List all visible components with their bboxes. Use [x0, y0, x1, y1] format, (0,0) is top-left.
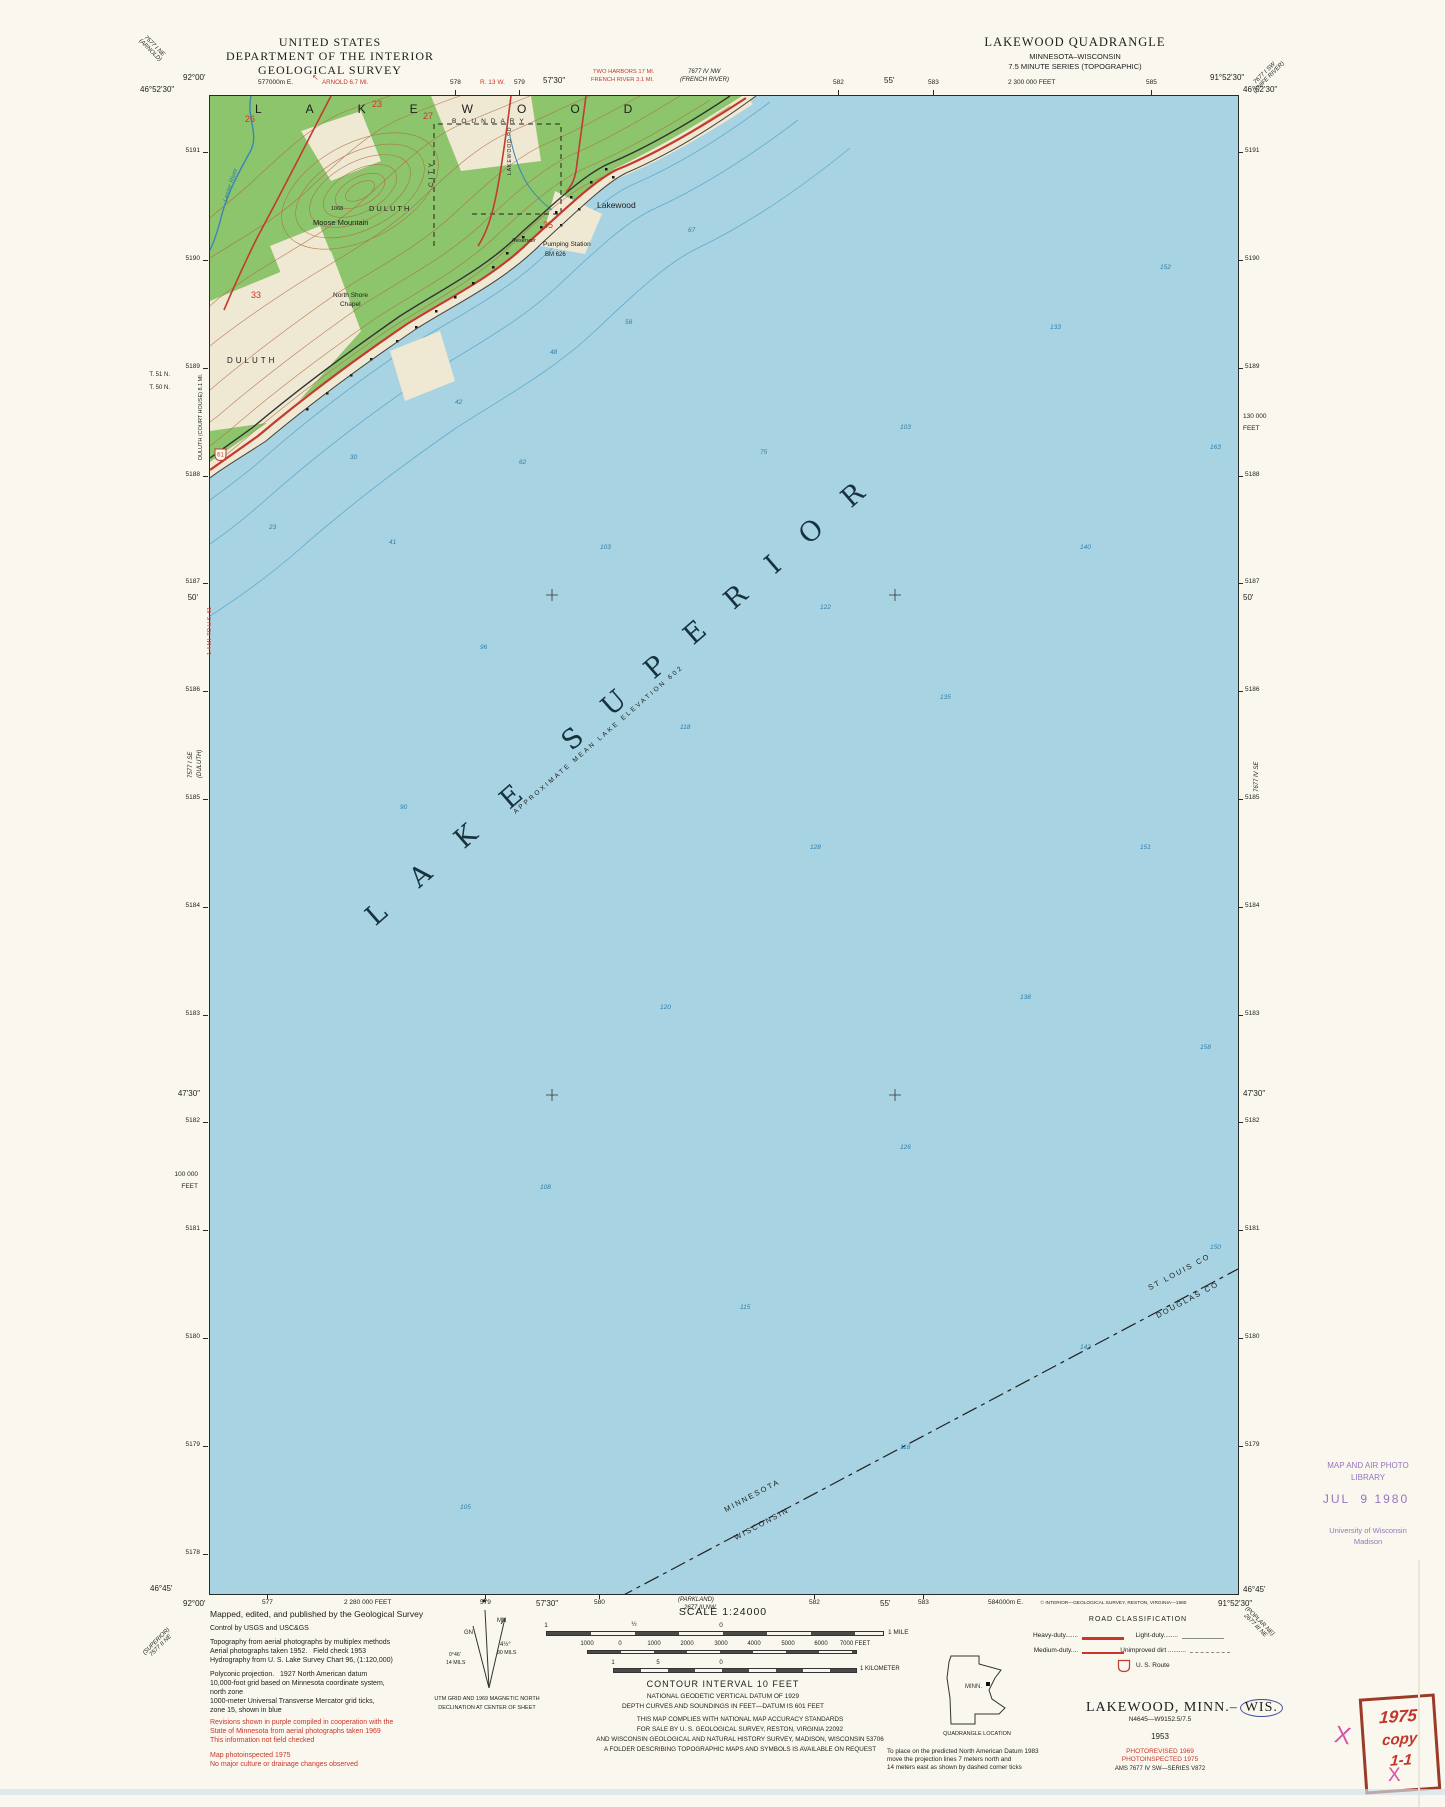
compliance-text: FOR SALE BY U. S. GEOLOGICAL SURVEY, RES…: [637, 1727, 843, 1734]
road-class-light: Light-duty........: [1135, 1633, 1178, 1640]
edge-label-bottom: 580: [594, 1600, 605, 1607]
edge-label-left: 7577 I NE (ARNOLD): [137, 34, 166, 63]
scale-label: 2000: [680, 1641, 693, 1647]
edge-label-top: 46°52'30": [1243, 86, 1277, 94]
grid-tick: [203, 368, 208, 369]
edge-label-bottom: 582: [809, 1600, 820, 1607]
edge-label-bottom: 91°52'30": [1218, 1600, 1252, 1608]
edge-label-right: 5185: [1245, 795, 1259, 802]
header-text: 7.5 MINUTE SERIES (TOPOGRAPHIC): [1008, 63, 1141, 71]
edge-label-right: 5190: [1245, 256, 1259, 263]
edge-label-right: 5180: [1245, 1334, 1259, 1341]
title-block-text: N4645—W9152.5/7.5: [1129, 1717, 1192, 1724]
sheet-title: LAKEWOOD, MINN.–WIS.: [1086, 1700, 1283, 1716]
scale-label: 1 MILE: [888, 1630, 909, 1637]
edge-label-bottom: ✩ INTERIOR—GEOLOGICAL SURVEY, RESTON, VI…: [1040, 1601, 1186, 1606]
edge-label-bottom: 583: [918, 1600, 929, 1607]
scale-label: CONTOUR INTERVAL 10 FEET: [647, 1680, 800, 1689]
edge-label-right: 7677 I SW (KNIFE RIVER): [1248, 57, 1286, 95]
edge-label-right: 130 000: [1243, 414, 1267, 421]
compliance-text: AND WISCONSIN GEOLOGICAL AND NATURAL HIS…: [596, 1737, 884, 1744]
edge-label-bottom: 46°45': [150, 1585, 173, 1593]
credit-note: zone 15, shown in blue: [210, 1707, 282, 1714]
grid-tick: [203, 799, 208, 800]
edge-label-bottom: 57'30": [536, 1600, 558, 1608]
edge-label-top: 55': [884, 77, 894, 85]
nad83-note: 14 meters east as shown by dashed corner…: [887, 1765, 1022, 1772]
map-frame: 61: [209, 95, 1239, 1595]
edge-label-left: 5179: [186, 1442, 200, 1449]
library-stamp-text: JUL 9 1980: [1323, 1493, 1409, 1506]
edge-label-left: T. 50 N.: [149, 385, 170, 391]
grid-tick: [203, 1122, 208, 1123]
compliance-text: A FOLDER DESCRIBING TOPOGRAPHIC MAPS AND…: [604, 1747, 876, 1754]
edge-label-top: 578: [450, 80, 461, 87]
header-text: MINNESOTA–WISCONSIN: [1029, 53, 1121, 61]
edge-label-top: ARNOLD 6.7 MI.: [322, 80, 368, 87]
grid-tick: [203, 476, 208, 477]
edge-label-left: 5191: [186, 148, 200, 155]
copy-stamp-year: 1975: [1362, 1705, 1433, 1730]
us-route-61-shield: 61: [215, 449, 226, 461]
scale-label: 1: [611, 1660, 614, 1666]
edge-label-top: 92°00': [183, 74, 206, 82]
scan-edge-strip: [0, 1789, 1445, 1795]
edge-label-right: 5191: [1245, 148, 1259, 155]
edge-label-top: ↖: [312, 74, 319, 82]
credit-note: Aerial photographs taken 1952. Field che…: [210, 1648, 366, 1655]
road-class-medium: Medium-duty....: [1034, 1648, 1078, 1655]
credit-note: Polyconic projection. 1927 North America…: [210, 1671, 367, 1678]
scale-label: 1: [544, 1623, 548, 1630]
grid-tick: [203, 1446, 208, 1447]
edge-label-top: 7677 IV NW: [688, 69, 720, 75]
edge-label-top: 579: [514, 80, 525, 87]
credit-note: Mapped, edited, and published by the Geo…: [210, 1610, 423, 1619]
edge-label-left: 5184: [186, 903, 200, 910]
library-stamp-text: LIBRARY: [1351, 1474, 1385, 1482]
edge-label-left: 7577 I SE: [188, 752, 194, 778]
map-artwork: 61: [210, 96, 1238, 1594]
copy-stamp: 1975 copy 1-1: [1359, 1693, 1442, 1794]
quad-location-caption: QUADRANGLE LOCATION: [943, 1732, 1011, 1738]
edge-label-left: 100 000: [175, 1172, 199, 1179]
edge-label-top: (FRENCH RIVER): [680, 77, 729, 83]
edge-label-top: R. 13 W.: [480, 80, 505, 87]
edge-label-left: DULUTH (COURT HOUSE) 8.1 MI.: [199, 374, 205, 460]
edge-label-right: 5182: [1245, 1118, 1259, 1125]
edge-label-bottom: 2677 III NW: [684, 1605, 716, 1611]
paper-crease: [1418, 1560, 1420, 1807]
copy-stamp-number: 1-1: [1366, 1749, 1437, 1771]
scale-label: 0: [719, 1660, 722, 1666]
edge-label-top: 585: [1146, 80, 1157, 87]
state-abbrev: MINN.: [965, 1684, 982, 1690]
library-stamp-text: Madison: [1354, 1538, 1382, 1546]
edge-label-left: 5178: [186, 1550, 200, 1557]
nad83-note: move the projection lines 7 meters north…: [887, 1757, 1011, 1764]
edge-label-right: 5189: [1245, 364, 1259, 371]
scale-label: 5000: [781, 1641, 794, 1647]
scale-label: 1000: [580, 1641, 593, 1647]
edge-label-left: 5186: [186, 687, 200, 694]
edge-label-right: 5187: [1245, 579, 1259, 586]
sheet-title-wis-oval: WIS.: [1240, 1699, 1283, 1717]
quadrangle-location-map: MINN.: [945, 1652, 1009, 1728]
grid-tick: [203, 583, 208, 584]
edge-label-right: 47'30": [1243, 1090, 1265, 1098]
edge-label-bottom: (PARKLAND): [678, 1597, 714, 1603]
grid-tick: [203, 260, 208, 261]
medium-duty-line: [1082, 1652, 1124, 1654]
edge-label-top: TWO HARBORS 17 MI.: [593, 69, 655, 75]
credit-note: State of Minnesota from aerial photograp…: [210, 1728, 381, 1735]
credit-note: 10,000-foot grid based on Minnesota coor…: [210, 1680, 385, 1687]
edge-label-bottom: 577: [262, 1600, 273, 1607]
scale-label: DEPTH CURVES AND SOUNDINGS IN FEET—DATUM…: [622, 1704, 824, 1711]
edge-label-left: FEET: [181, 1184, 198, 1191]
compliance-text: THIS MAP COMPLIES WITH NATIONAL MAP ACCU…: [637, 1717, 843, 1724]
sheet-title-text: LAKEWOOD, MINN.–: [1086, 1700, 1238, 1715]
title-block-text: PHOTOINSPECTED 1975: [1122, 1757, 1198, 1764]
edge-label-right: 5186: [1245, 687, 1259, 694]
edge-label-bottom: 92°00': [183, 1600, 206, 1608]
title-block-text: PHOTOREVISED 1969: [1126, 1749, 1194, 1756]
edge-label-left: 5181: [186, 1226, 200, 1233]
scale-label: 7000 FEET: [840, 1641, 870, 1647]
header-text: UNITED STATES: [279, 36, 381, 49]
pencil-x-mark: X: [1333, 1722, 1353, 1750]
edge-label-left: 47'30": [178, 1090, 200, 1098]
title-block-text: AMS 7677 IV SW—SERIES V872: [1115, 1766, 1205, 1772]
edge-label-left: T. 51 N.: [149, 372, 170, 378]
scale-label: 0: [618, 1641, 621, 1647]
unimproved-dirt-line: [1190, 1652, 1230, 1653]
grid-tick: [203, 907, 208, 908]
topo-map-sheet: 61 LAKEWOODBOUNDARYCITYDULUTHMoose Mount…: [0, 0, 1445, 1807]
nad83-note: To place on the predicted North American…: [887, 1749, 1039, 1756]
scale-label: NATIONAL GEODETIC VERTICAL DATUM OF 1929: [647, 1694, 799, 1701]
credit-note: No major culture or drainage changes obs…: [210, 1761, 358, 1768]
scale-label: 6000: [814, 1641, 827, 1647]
grid-tick: [203, 152, 208, 153]
edge-label-top: 46°52'30": [140, 86, 174, 94]
quad-location-dot: [986, 1682, 990, 1686]
us-route-shield-icon: [1117, 1659, 1131, 1673]
edge-label-right: 5184: [1245, 903, 1259, 910]
header-text: DEPARTMENT OF THE INTERIOR: [226, 50, 434, 63]
edge-label-left: 5188: [186, 472, 200, 479]
grid-tick: [203, 1015, 208, 1016]
declination-label: UTM GRID AND 1969 MAGNETIC NORTH: [434, 1697, 539, 1703]
edge-label-top: 2 300 000 FEET: [1008, 80, 1055, 87]
scale-bar-kilometer: [613, 1668, 857, 1673]
edge-label-bottom: 584000m E.: [988, 1600, 1023, 1607]
edge-label-right: 5179: [1245, 1442, 1259, 1449]
edge-label-right: 5181: [1245, 1226, 1259, 1233]
edge-label-left: 5182: [186, 1118, 200, 1125]
edge-label-bottom: 2 280 000 FEET: [344, 1600, 391, 1607]
edge-label-right: 5188: [1245, 472, 1259, 479]
road-class-route: U. S. Route: [1136, 1663, 1170, 1670]
edge-label-left: 5189: [186, 364, 200, 371]
edge-label-bottom: 46°45': [1243, 1586, 1266, 1594]
grid-tick: [203, 691, 208, 692]
route-number: 61: [217, 453, 224, 459]
scale-bar-mile: [546, 1631, 884, 1636]
edge-label-left: 5190: [186, 256, 200, 263]
scale-bar-feet: [587, 1650, 857, 1654]
grid-tick: [203, 1230, 208, 1231]
edge-label-left: 5187: [186, 579, 200, 586]
road-class-heavy: Heavy-duty.......: [1033, 1633, 1078, 1640]
edge-label-top: 91°52'30": [1210, 74, 1244, 82]
heavy-duty-line: [1082, 1637, 1124, 1640]
edge-label-right: FEET: [1243, 426, 1260, 433]
credit-note: north zone: [210, 1689, 243, 1696]
scale-label: 0: [719, 1623, 723, 1630]
edge-label-top: 57'30": [543, 77, 565, 85]
edge-label-top: 583: [928, 80, 939, 87]
scale-label: 1 KILOMETER: [860, 1666, 900, 1672]
scale-label: SCALE 1:24000: [679, 1607, 767, 1618]
edge-label-left: (SUPERIOR) 7577 II NE: [142, 1627, 176, 1661]
edge-label-top: 577000m E.: [258, 80, 293, 87]
credit-note: 1000-meter Universal Transverse Mercator…: [210, 1698, 375, 1705]
edge-label-right: (POPLAR NE) 2677 III NE: [1239, 1606, 1275, 1642]
road-class-dirt: Unimproved dirt ..........: [1120, 1648, 1186, 1655]
declination-diagram: [445, 1604, 535, 1694]
scale-label: 1000: [647, 1641, 660, 1647]
edge-label-right: 5183: [1245, 1011, 1259, 1018]
credit-note: Control by USGS and USC&GS: [210, 1625, 309, 1632]
edge-label-right: 7677 IV SE: [1254, 762, 1260, 792]
scale-label: 5: [656, 1660, 659, 1666]
declination-label: DECLINATION AT CENTER OF SHEET: [438, 1706, 536, 1712]
header-text: GEOLOGICAL SURVEY: [258, 64, 402, 77]
edge-label-left: 50': [188, 594, 198, 602]
edge-label-left: 5180: [186, 1334, 200, 1341]
road-class-title: ROAD CLASSIFICATION: [1089, 1616, 1187, 1623]
copy-stamp-copy: copy: [1364, 1729, 1435, 1751]
light-duty-line: [1182, 1638, 1224, 1639]
library-stamp-text: MAP AND AIR PHOTO: [1327, 1462, 1409, 1470]
edge-label-right: 50': [1243, 594, 1253, 602]
edge-label-bottom: 55': [880, 1600, 890, 1608]
scale-label: 4000: [747, 1641, 760, 1647]
scale-label: ½: [631, 1622, 636, 1629]
scale-label: 3000: [714, 1641, 727, 1647]
grid-tick: [203, 1554, 208, 1555]
credit-note: Topography from aerial photographs by mu…: [210, 1639, 390, 1646]
header-text: LAKEWOOD QUADRANGLE: [984, 36, 1165, 49]
credit-note: Map photoinspected 1975: [210, 1752, 291, 1759]
edge-label-left: 5185: [186, 795, 200, 802]
credit-note: This information not field checked: [210, 1737, 314, 1744]
grid-tick: [203, 1338, 208, 1339]
credit-note: Hydrography from U. S. Lake Survey Chart…: [210, 1657, 393, 1664]
edge-label-left: (DULUTH): [197, 750, 203, 778]
edge-label-left: 5183: [186, 1011, 200, 1018]
edge-label-top: 582: [833, 80, 844, 87]
title-block-text: 1953: [1151, 1733, 1169, 1741]
library-stamp-text: University of Wisconsin: [1329, 1527, 1407, 1535]
edge-label-top: FRENCH RIVER 3.1 MI.: [591, 77, 654, 83]
credit-note: Revisions shown in purple compiled in co…: [210, 1719, 393, 1726]
